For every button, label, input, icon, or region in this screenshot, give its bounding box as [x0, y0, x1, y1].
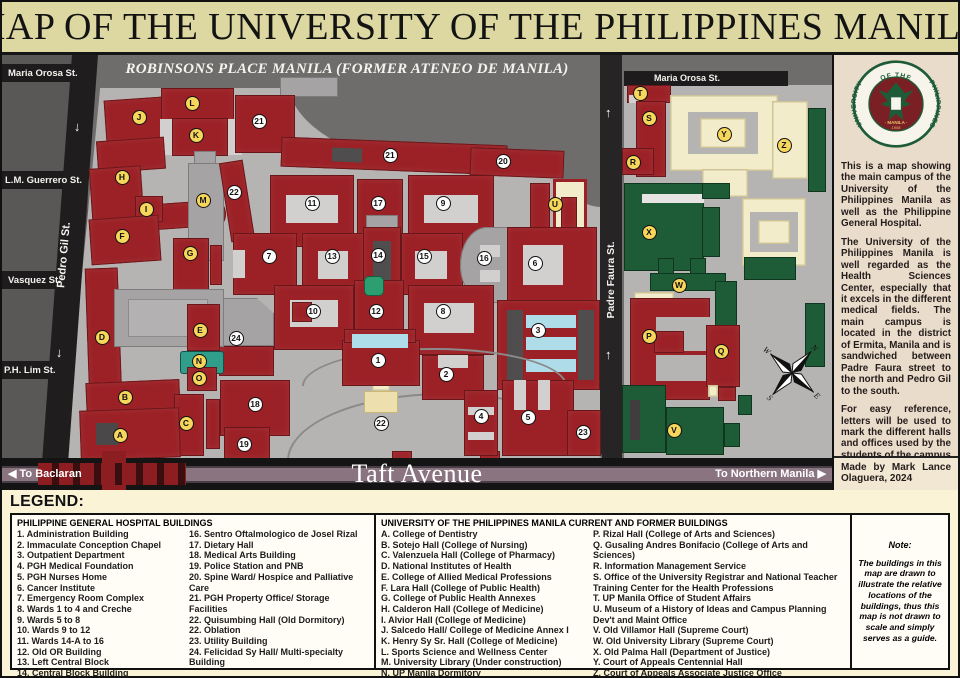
legend-item: F. Lara Hall (College of Public Health) — [381, 583, 593, 594]
map-marker-F: F — [115, 229, 130, 244]
legend-item: T. UP Manila Office of Student Affairs — [593, 593, 845, 604]
legend-upm-col1: A. College of DentistryB. Sotejo Hall (C… — [381, 529, 593, 678]
building — [630, 400, 640, 440]
legend-item: D. National Institutes of Health — [381, 561, 593, 572]
map-marker-21: 21 — [383, 148, 398, 163]
building — [758, 220, 790, 244]
direction-arrow-icon: ↑ — [605, 105, 612, 120]
direction-arrow-icon: ↓ — [73, 119, 81, 134]
street-label: L.M. Guerrero St. — [5, 175, 82, 186]
building — [658, 258, 674, 274]
legend-item: 3. Outpatient Department — [17, 550, 189, 561]
map-marker-20: 20 — [496, 154, 511, 169]
legend-item: Y. Court of Appeals Centennial Hall — [593, 657, 845, 668]
legend-pgh-col1: 1. Administration Building2. Immaculate … — [17, 529, 189, 678]
to-northern-manila-label: To Northern Manila ▶ — [692, 467, 826, 480]
legend-item: C. Valenzuela Hall (College of Pharmacy) — [381, 550, 593, 561]
legend-item: K. Henry Sy Sr. Hall (College of Medicin… — [381, 636, 593, 647]
building — [219, 346, 274, 376]
map-marker-O: O — [192, 371, 207, 386]
legend-item: 19. Police Station and PNB — [189, 561, 369, 572]
map-marker-D: D — [95, 330, 110, 345]
legend-upm-header: UNIVERSITY OF THE PHILIPPINES MANILA CUR… — [381, 518, 845, 528]
building — [708, 385, 718, 397]
legend-item: Z. Court of Appeals Associate Justice Of… — [593, 668, 845, 678]
street-label: P.H. Lim St. — [4, 365, 56, 376]
legend-item: 22. Oblation — [189, 625, 369, 636]
legend-pgh-col2: 16. Sentro Oftalmologico de Josel Rizal1… — [189, 529, 369, 678]
map-marker-5: 5 — [521, 410, 536, 425]
legend-item: B. Sotejo Hall (College of Nursing) — [381, 540, 593, 551]
building — [744, 257, 796, 280]
map-marker-17: 17 — [371, 196, 386, 211]
map-marker-V: V — [667, 423, 682, 438]
poster-page: MAP OF THE UNIVERSITY OF THE PHILIPPINES… — [0, 0, 960, 678]
building — [206, 399, 220, 449]
direction-arrow-icon: ↓ — [55, 345, 63, 360]
direction-arrow-icon: ↑ — [605, 347, 612, 362]
map-marker-2: 2 — [439, 367, 454, 382]
legend-item: H. Calderon Hall (College of Medicine) — [381, 604, 593, 615]
map-marker-W: W — [672, 278, 687, 293]
map-marker-R: R — [626, 155, 641, 170]
building — [352, 334, 408, 348]
legend-item: X. Old Palma Hall (Department of Justice… — [593, 647, 845, 658]
building — [468, 432, 494, 440]
map-marker-12: 12 — [369, 304, 384, 319]
page-title: MAP OF THE UNIVERSITY OF THE PHILIPPINES… — [0, 5, 960, 49]
compass-rose-icon: N E S W — [754, 335, 830, 411]
legend-item: L. Sports Science and Wellness Center — [381, 647, 593, 658]
building — [332, 147, 363, 162]
legend-note: Note: The buildings in this map are draw… — [852, 515, 948, 668]
legend-item: 2. Immaculate Conception Chapel — [17, 540, 189, 551]
legend-item: 1. Administration Building — [17, 529, 189, 540]
building — [738, 395, 752, 415]
map-marker-A: A — [113, 428, 128, 443]
info-sidebar: OF THE UNIVERSITY PHILIPPINES · MANILA ·… — [832, 55, 958, 490]
street-label: Maria Orosa St. — [8, 68, 78, 79]
seal-text-year: 1908 — [892, 125, 902, 130]
map-marker-10: 10 — [306, 304, 321, 319]
sidebar-paragraph: The University of the Philippines Manila… — [834, 237, 958, 397]
to-baclaran-label: ◀ To Baclaran — [8, 467, 82, 480]
map-marker-N: N — [192, 354, 207, 369]
legend-item: N. UP Manila Dormitory — [381, 668, 593, 678]
university-seal-icon: OF THE UNIVERSITY PHILIPPINES · MANILA ·… — [851, 59, 941, 149]
building — [233, 250, 245, 278]
map-marker-16: 16 — [477, 251, 492, 266]
map-marker-B: B — [118, 390, 133, 405]
legend-item: 14. Central Block Building — [17, 668, 189, 678]
building — [718, 387, 736, 401]
legend-item: P. Rizal Hall (College of Arts and Scien… — [593, 529, 845, 540]
building — [715, 281, 737, 327]
legend-item: I. Alvior Hall (College of Medicine) — [381, 615, 593, 626]
map-marker-19: 19 — [237, 437, 252, 452]
seal-text-manila: · MANILA · — [885, 120, 908, 125]
legend-item: E. College of Allied Medical Professions — [381, 572, 593, 583]
map-marker-21: 21 — [252, 114, 267, 129]
building — [690, 258, 706, 274]
note-body: The buildings in this map are drawn to i… — [857, 558, 943, 644]
map-marker-6: 6 — [528, 256, 543, 271]
note-title: Note: — [857, 540, 943, 550]
legend-item: 23. Utility Building — [189, 636, 369, 647]
map-marker-13: 13 — [325, 249, 340, 264]
map-marker-9: 9 — [436, 196, 451, 211]
legend-upm: UNIVERSITY OF THE PHILIPPINES MANILA CUR… — [376, 515, 852, 668]
building — [480, 270, 500, 282]
building — [514, 380, 526, 410]
map-marker-P: P — [642, 329, 657, 344]
building — [538, 380, 550, 410]
map-marker-24: 24 — [229, 331, 244, 346]
legend-item: 22. Quisumbing Hall (Old Dormitory) — [189, 615, 369, 626]
compass-s: S — [765, 393, 774, 402]
legend-item: 16. Sentro Oftalmologico de Josel Rizal — [189, 529, 369, 540]
legend-section: LEGEND: PHILIPPINE GENERAL HOSPITAL BUIL… — [2, 490, 958, 676]
building — [424, 195, 478, 223]
legend-item: 9. Wards 5 to 8 — [17, 615, 189, 626]
legend-item: S. Office of the University Registrar an… — [593, 572, 845, 593]
street-label: Maria Orosa St. — [654, 73, 720, 83]
map-marker-L: L — [185, 96, 200, 111]
building — [526, 337, 576, 350]
legend-pgh-header: PHILIPPINE GENERAL HOSPITAL BUILDINGS — [17, 518, 369, 528]
legend-item: U. Museum of a History of Ideas and Camp… — [593, 604, 845, 625]
building — [724, 423, 740, 447]
legend-item: W. Old University Library (Supreme Court… — [593, 636, 845, 647]
map-marker-I: I — [139, 202, 154, 217]
map-marker-14: 14 — [371, 248, 386, 263]
building — [438, 355, 468, 368]
legend-item: 7. Emergency Room Complex — [17, 593, 189, 604]
building — [702, 183, 730, 199]
map-marker-23: 23 — [576, 425, 591, 440]
map-marker-8: 8 — [436, 304, 451, 319]
campus-map: Maria Orosa St. L.M. Guerrero St. Vasque… — [2, 55, 832, 490]
up-seal: OF THE UNIVERSITY PHILIPPINES · MANILA ·… — [834, 55, 958, 154]
map-marker-E: E — [193, 323, 208, 338]
map-marker-3: 3 — [531, 323, 546, 338]
oblation-monument — [364, 391, 398, 413]
building — [808, 108, 826, 192]
robinsons-place-label: ROBINSONS PLACE MANILA (FORMER ATENEO DE… — [112, 61, 582, 78]
map-marker-15: 15 — [417, 249, 432, 264]
legend-item: 18. Medical Arts Building — [189, 550, 369, 561]
map-marker-11: 11 — [305, 196, 320, 211]
building — [364, 276, 384, 296]
street-label: Padre Faura St. — [605, 220, 617, 340]
legend-item: V. Old Villamor Hall (Supreme Court) — [593, 625, 845, 636]
sidebar-paragraph: This is a map showing the main campus of… — [834, 161, 958, 230]
legend-item: 5. PGH Nurses Home — [17, 572, 189, 583]
legend-item: G. College of Public Health Annexes — [381, 593, 593, 604]
map-marker-G: G — [183, 246, 198, 261]
building — [578, 310, 594, 380]
legend-item: J. Salcedo Hall/ College of Medicine Ann… — [381, 625, 593, 636]
map-marker-H: H — [115, 170, 130, 185]
map-marker-M: M — [196, 193, 211, 208]
map-marker-4: 4 — [474, 409, 489, 424]
map-marker-T: T — [633, 86, 648, 101]
street-label: Vasquez St. — [8, 275, 61, 286]
building — [656, 355, 710, 381]
map-marker-X: X — [642, 225, 657, 240]
building — [702, 207, 720, 257]
legend-item: 13. Left Central Block — [17, 657, 189, 668]
map-marker-Y: Y — [717, 127, 732, 142]
legend-item: 11. Wards 14-A to 16 — [17, 636, 189, 647]
legend-item: 4. PGH Medical Foundation — [17, 561, 189, 572]
map-marker-Z: Z — [777, 138, 792, 153]
legend-item: 12. Old OR Building — [17, 647, 189, 658]
map-marker-J: J — [132, 110, 147, 125]
legend-item: 10. Wards 9 to 12 — [17, 625, 189, 636]
title-bar: MAP OF THE UNIVERSITY OF THE PHILIPPINES… — [2, 2, 958, 55]
map-marker-18: 18 — [248, 397, 263, 412]
legend-item: 17. Dietary Hall — [189, 540, 369, 551]
credit-line: Made by Mark Lance Olaguera, 2024 — [834, 456, 958, 490]
map-marker-S: S — [642, 111, 657, 126]
map-marker-C: C — [179, 416, 194, 431]
legend-item: 24. Felicidad Sy Hall/ Multi-specialty B… — [189, 647, 369, 668]
legend-pgh: PHILIPPINE GENERAL HOSPITAL BUILDINGS 1.… — [12, 515, 376, 668]
map-marker-Q: Q — [714, 344, 729, 359]
building — [79, 407, 181, 460]
legend-item: M. University Library (Under constructio… — [381, 657, 593, 668]
map-marker-22: 22 — [227, 185, 242, 200]
legend-item: 8. Wards 1 to 4 and Creche — [17, 604, 189, 615]
map-marker-U: U — [548, 197, 563, 212]
legend-item: 21. PGH Property Office/ Storage Facilit… — [189, 593, 369, 614]
map-marker-7: 7 — [262, 249, 277, 264]
building — [622, 385, 666, 453]
building — [654, 331, 684, 353]
legend-item: 20. Spine Ward/ Hospice and Palliative C… — [189, 572, 369, 593]
sidebar-text: This is a map showing the main campus of… — [834, 161, 958, 490]
building — [280, 77, 338, 97]
map-marker-1: 1 — [371, 353, 386, 368]
legend-title: LEGEND: — [10, 493, 950, 511]
legend-box: PHILIPPINE GENERAL HOSPITAL BUILDINGS 1.… — [10, 513, 950, 670]
building — [210, 245, 222, 285]
building — [642, 194, 704, 203]
building — [561, 197, 577, 229]
legend-item: 6. Cancer Institute — [17, 583, 189, 594]
legend-item: Q. Gusaling Andres Bonifacio (College of… — [593, 540, 845, 561]
legend-item: A. College of Dentistry — [381, 529, 593, 540]
legend-item: R. Information Management Service — [593, 561, 845, 572]
map-marker-22: 22 — [374, 416, 389, 431]
legend-upm-col2: P. Rizal Hall (College of Arts and Scien… — [593, 529, 845, 678]
map-marker-K: K — [189, 128, 204, 143]
